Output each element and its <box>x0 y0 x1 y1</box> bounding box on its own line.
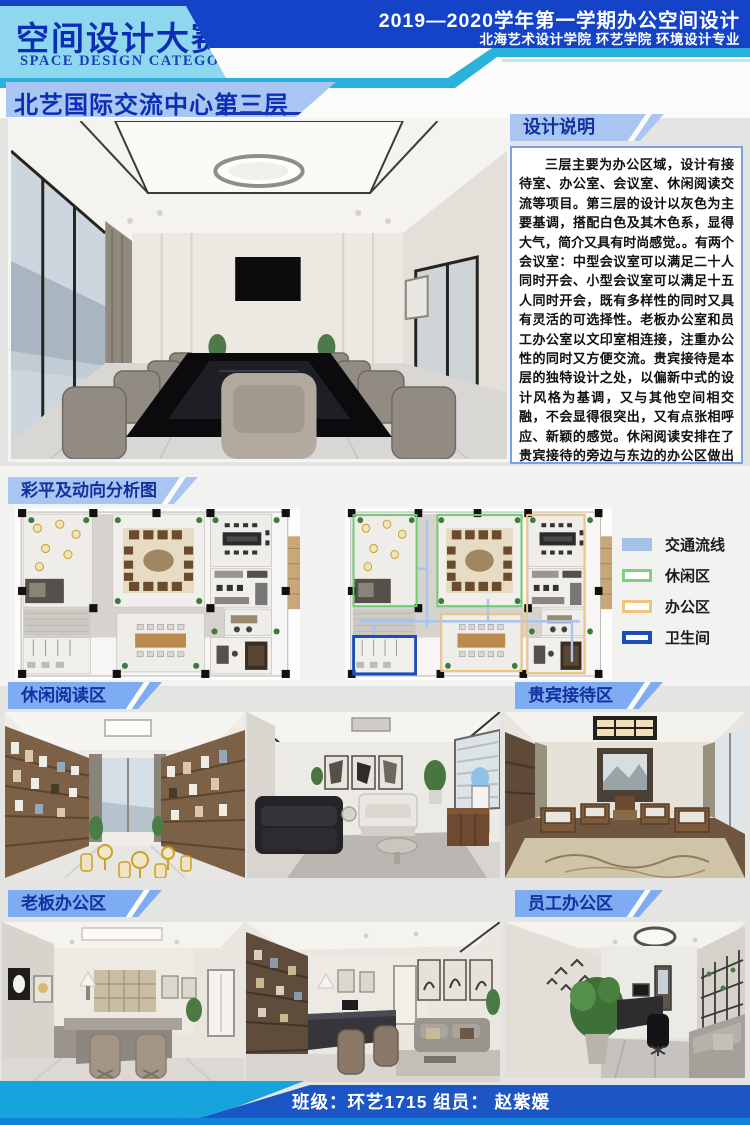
vip-heading: 贵宾接待区 <box>528 686 613 705</box>
footer-credit: 班级：环艺1715 组员： 赵紫媛 <box>292 1089 550 1114</box>
header-slash-decoration <box>124 678 151 714</box>
photo-vip-reception <box>505 712 745 878</box>
floor-plan-colored <box>15 508 300 680</box>
photo-staff-office <box>505 922 745 1078</box>
photo-lounge-room <box>247 712 500 878</box>
header-slash-decoration <box>626 110 653 146</box>
photo-boss-office-front <box>2 922 244 1082</box>
leisure-section-header: 休闲阅读区 <box>8 682 162 709</box>
legend-label-traffic: 交通流线 <box>665 534 725 555</box>
header-slash-decoration <box>124 886 151 922</box>
header-slash-decoration <box>625 678 652 714</box>
legend-item-leisure: 休闲区 <box>622 565 748 586</box>
plan-section-header: 彩平及动向分析图 <box>8 477 198 504</box>
plan-legend: 交通流线 休闲区 办公区 卫生间 <box>622 534 748 658</box>
staff-section-header: 员工办公区 <box>515 890 663 917</box>
photo-boss-office-side <box>246 922 500 1082</box>
legend-item-bathroom: 卫生间 <box>622 627 748 648</box>
legend-item-office: 办公区 <box>622 596 748 617</box>
legend-swatch-office <box>622 600 652 613</box>
design-notes-heading: 设计说明 <box>523 117 595 137</box>
design-notes-body: 三层主要为办公区域，设计有接待室、办公室、会议室、休闲阅读交流等项目。第三层的设… <box>519 155 734 464</box>
legend-label-office: 办公区 <box>665 596 710 617</box>
design-notes-header: 设计说明 <box>510 114 664 141</box>
legend-label-bathroom: 卫生间 <box>665 627 710 648</box>
project-title-banner: 北艺国际交流中心第三层 <box>6 82 342 117</box>
photo-conference-room <box>8 118 510 462</box>
legend-label-leisure: 休闲区 <box>665 565 710 586</box>
poster: 2019—2020学年第一学期办公空间设计 北海艺术设计学院 环艺学院 环境设计… <box>0 0 750 1125</box>
plan-section-heading: 彩平及动向分析图 <box>21 481 157 500</box>
photo-reading-room <box>5 712 245 878</box>
boss-heading: 老板办公区 <box>21 894 106 913</box>
legend-item-traffic: 交通流线 <box>622 534 748 555</box>
floor-plan-analysis <box>345 508 612 680</box>
leisure-heading: 休闲阅读区 <box>21 686 106 705</box>
vip-section-header: 贵宾接待区 <box>515 682 663 709</box>
legend-swatch-traffic <box>622 538 652 551</box>
boss-section-header: 老板办公区 <box>8 890 162 917</box>
design-notes-box: 三层主要为办公区域，设计有接待室、办公室、会议室、休闲阅读交流等项目。第三层的设… <box>510 146 743 464</box>
header-slash-decoration <box>625 886 652 922</box>
staff-heading: 员工办公区 <box>528 894 613 913</box>
legend-swatch-bathroom <box>622 631 652 644</box>
legend-swatch-leisure <box>622 569 652 582</box>
